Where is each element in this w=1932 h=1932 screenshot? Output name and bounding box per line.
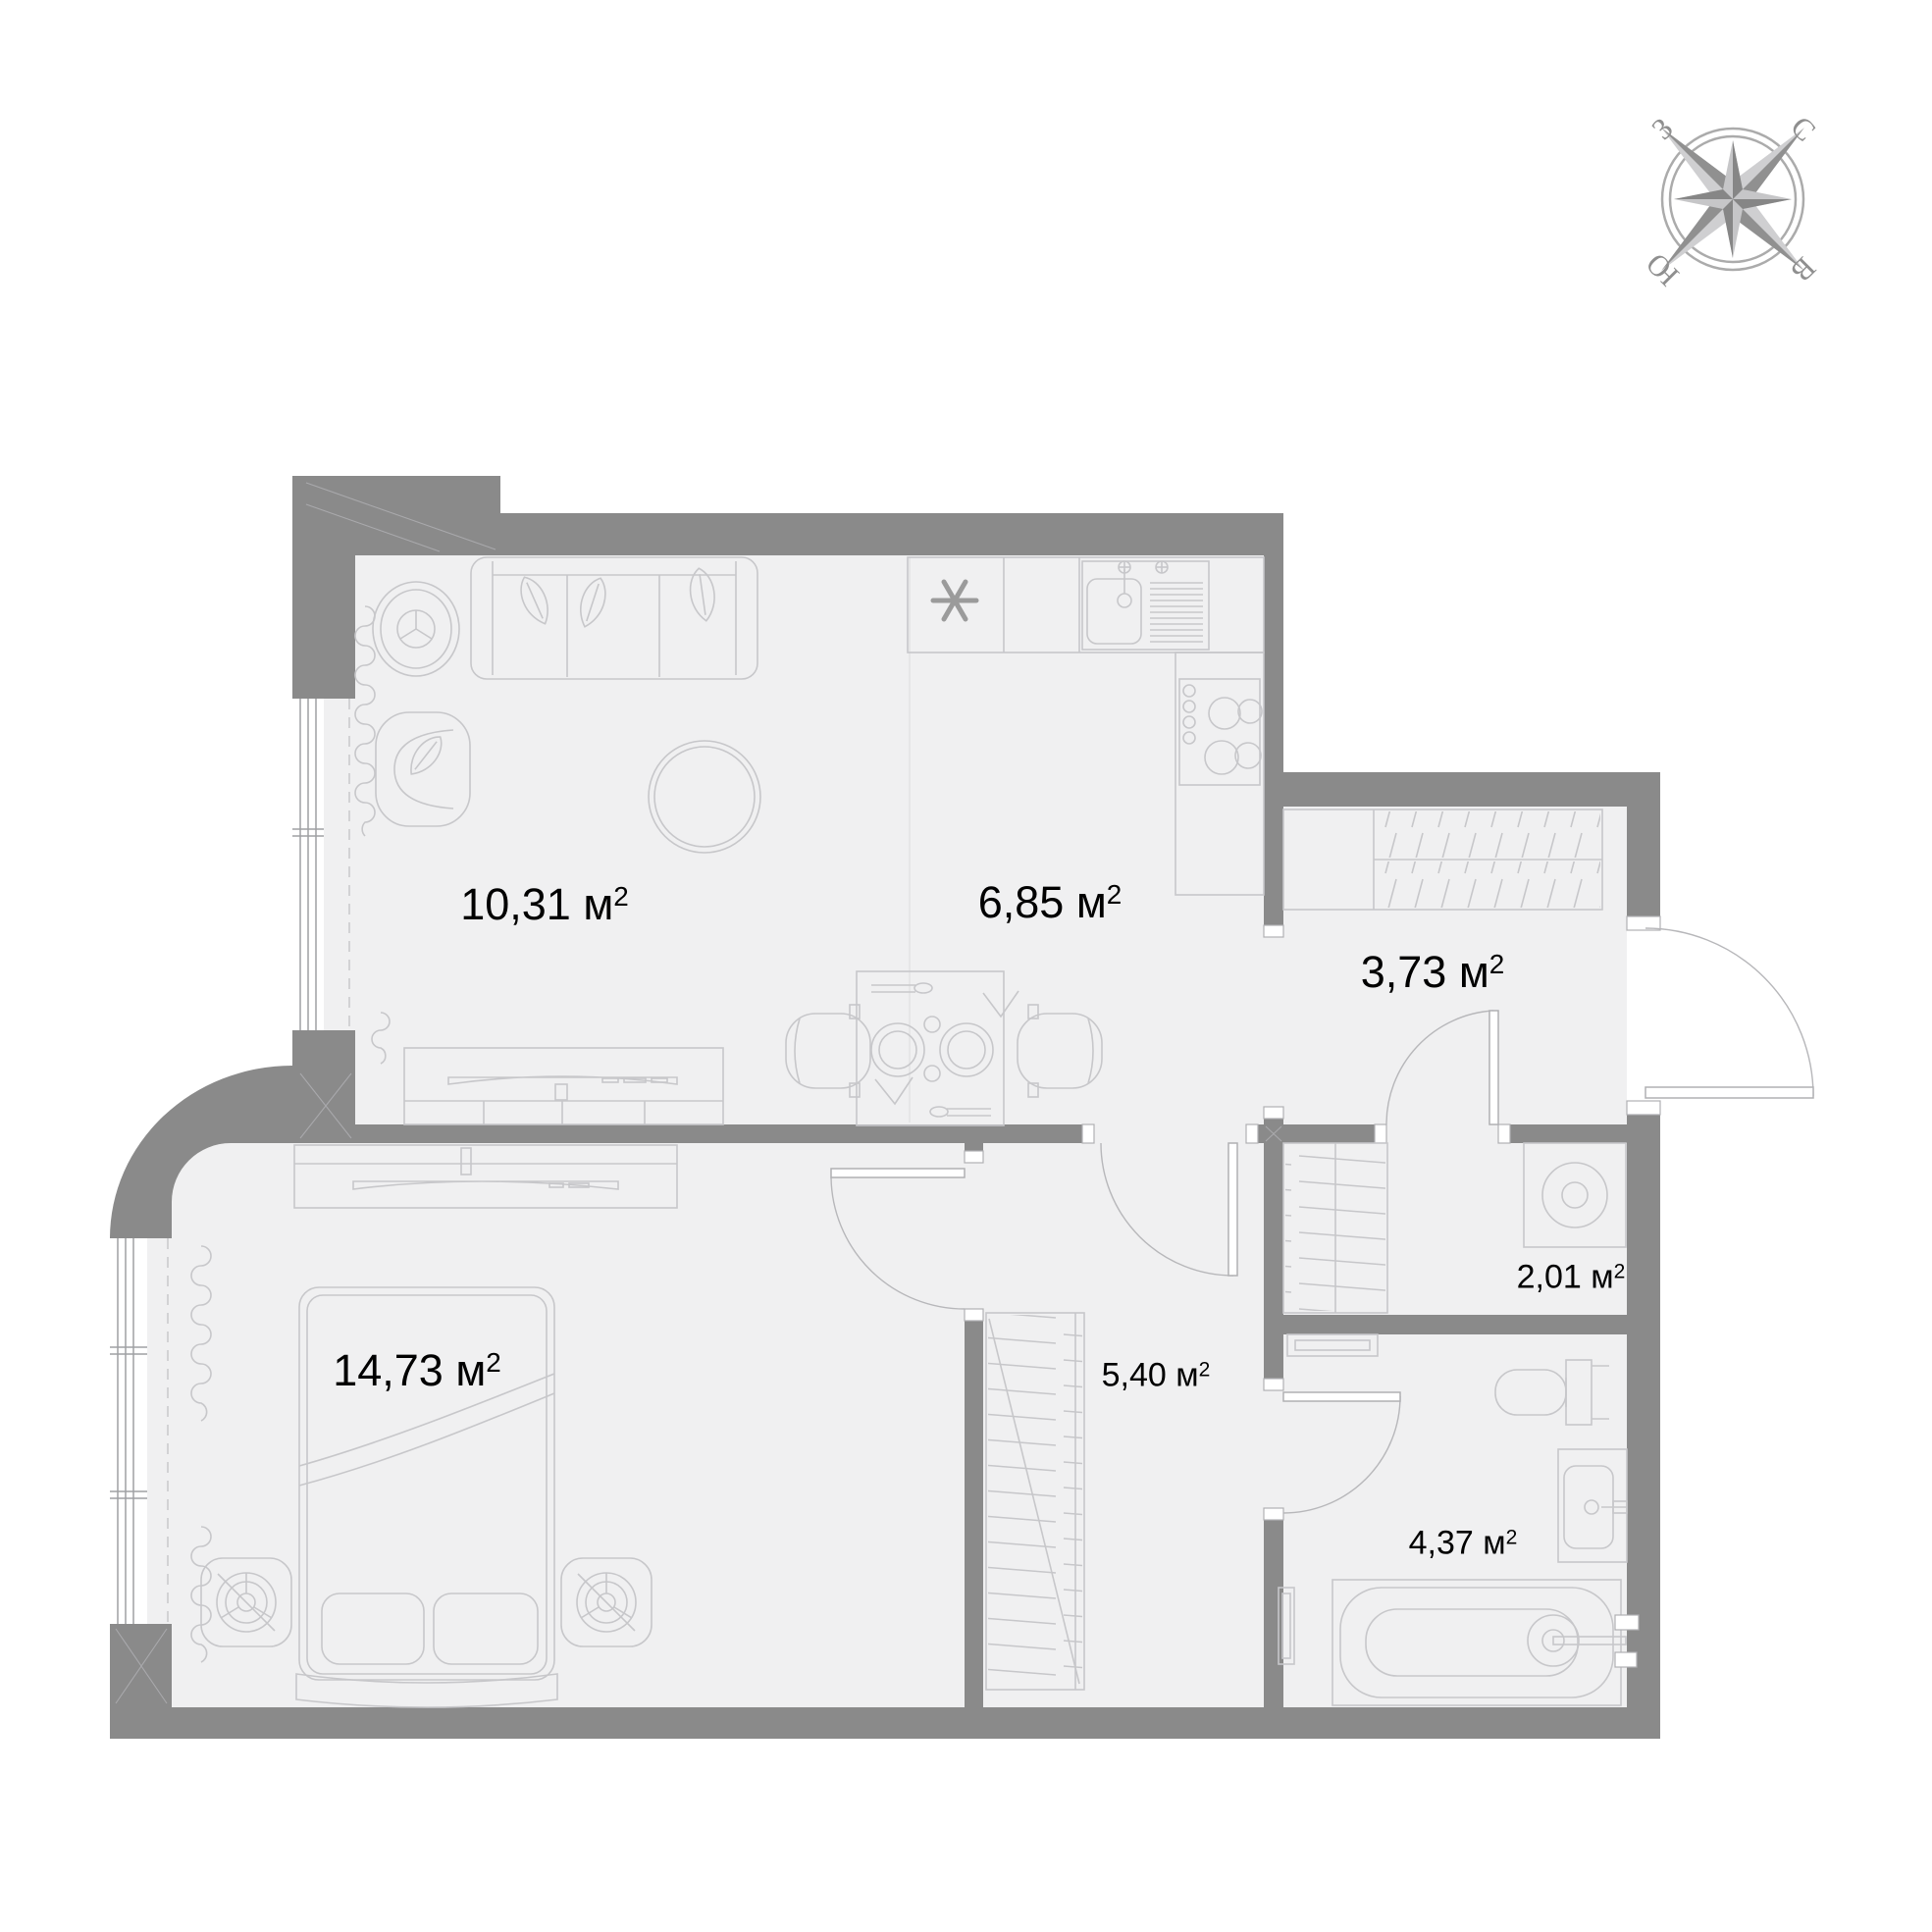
room-label-living: 10,31 м2 (460, 879, 629, 930)
floor-passage-kitchen-hallway (1264, 937, 1283, 1107)
wall-kitchen-right (1264, 513, 1283, 937)
floor-bathroom (1283, 1334, 1627, 1707)
room-label-hallway: 3,73 м2 (1361, 947, 1505, 998)
room-label-bathroom: 4,37 м2 (1409, 1524, 1518, 1562)
floor-plan-page: С В Ю З 10,31 м2 6,85 м2 3,73 м2 2,01 м2… (0, 0, 1932, 1932)
wall-bedroom-corridor (965, 1309, 983, 1707)
entrance-door (1645, 928, 1813, 1098)
room-label-corridor: 5,40 м2 (1102, 1356, 1211, 1394)
floor-living-kitchen (355, 555, 1264, 1124)
corridor-wardrobe (986, 1313, 1084, 1690)
closet (1283, 1143, 1387, 1313)
room-label-bedroom: 14,73 м2 (333, 1345, 501, 1396)
compass-rose: С В Ю З (1590, 56, 1875, 341)
room-label-wardrobe-room: 2,01 м2 (1517, 1258, 1626, 1296)
wall-right-lower (1627, 1101, 1660, 1739)
wall-bottom (110, 1707, 1660, 1739)
furniture-corridor (986, 1313, 1084, 1690)
room-label-kitchen: 6,85 м2 (978, 877, 1123, 928)
wall-bathroom-top (1283, 1315, 1627, 1334)
wall-hallway-top (1264, 772, 1660, 807)
wall-mid-divider (355, 1124, 1094, 1143)
floor-plan-drawing: С В Ю З (0, 0, 1932, 1932)
